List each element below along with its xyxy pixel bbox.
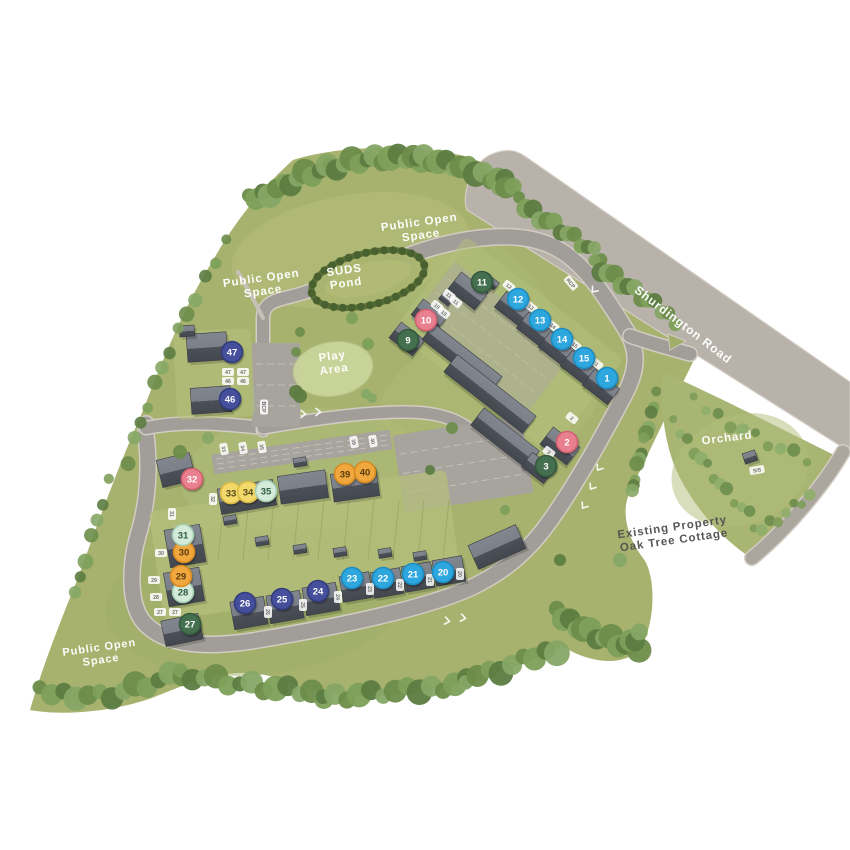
plot-number: 1	[604, 373, 610, 384]
plot-marker-23[interactable]: 23	[342, 568, 363, 589]
site-plan-map: 1111101012131415123474746463130292827273…	[0, 0, 850, 850]
plot-marker-20[interactable]: 20	[433, 562, 454, 583]
plot-number: 22	[378, 573, 389, 584]
plot-number: 29	[176, 571, 187, 582]
parking-plot-label: 28	[150, 593, 162, 601]
plot-marker-47[interactable]: 47	[222, 342, 243, 363]
plot-number: 35	[261, 486, 272, 497]
plot-marker-40[interactable]: 40	[355, 462, 376, 483]
plot-number: 33	[226, 488, 237, 499]
plot-number: 30	[179, 547, 190, 558]
label-suds-pond: SUDSPond	[326, 262, 365, 292]
svg-text:32: 32	[209, 496, 215, 502]
plot-number: 32	[187, 474, 198, 485]
parking-plot-label: 46	[237, 377, 249, 385]
parking-plot-label: 27	[154, 608, 166, 616]
plot-marker-14[interactable]: 14	[552, 329, 573, 350]
parking-plot-label: 31	[168, 508, 176, 520]
plot-number: 25	[277, 594, 288, 605]
plot-number: 23	[347, 573, 358, 584]
plot-marker-22[interactable]: 22	[373, 568, 394, 589]
parking-plot-label: 32	[209, 493, 217, 505]
label-existing-property: Existing PropertyOak Tree Cottage	[617, 514, 730, 554]
svg-text:20: 20	[456, 571, 462, 577]
plot-number: 34	[243, 487, 254, 498]
plot-number: 13	[535, 315, 546, 326]
svg-text:47: 47	[240, 370, 246, 376]
plot-number: 40	[360, 467, 371, 478]
plot-marker-1[interactable]: 1	[597, 368, 618, 389]
plot-marker-46[interactable]: 46	[220, 389, 241, 410]
parking-plot-label: 29	[148, 576, 160, 584]
plot-marker-39[interactable]: 39	[335, 464, 356, 485]
plot-number: 14	[557, 334, 568, 345]
plot-marker-25[interactable]: 25	[272, 589, 293, 610]
plot-number: 10	[421, 315, 432, 326]
svg-text:27: 27	[172, 610, 178, 616]
plot-marker-3[interactable]: 3	[536, 456, 557, 477]
parking-plot-label: 27	[169, 608, 181, 616]
svg-text:27: 27	[157, 610, 163, 616]
parking-plot-label: 26	[264, 606, 272, 618]
parking-plot-label: 47	[222, 368, 234, 376]
parking-plot-label: 47	[237, 368, 249, 376]
plot-marker-26[interactable]: 26	[235, 593, 256, 614]
svg-text:30: 30	[158, 551, 164, 557]
plot-number: 39	[340, 469, 351, 480]
svg-text:BCP: BCP	[260, 402, 266, 413]
plot-number: 15	[579, 353, 590, 364]
plot-number: 21	[408, 569, 419, 580]
plot-number: 9	[405, 335, 410, 346]
svg-text:40: 40	[369, 438, 376, 445]
plot-marker-21[interactable]: 21	[403, 564, 424, 585]
svg-text:25: 25	[299, 602, 305, 608]
svg-text:35: 35	[258, 444, 265, 451]
plot-number: 27	[185, 619, 196, 630]
svg-text:22: 22	[396, 582, 402, 588]
plot-number: 28	[178, 587, 189, 598]
svg-text:23: 23	[366, 586, 372, 592]
plot-number: 31	[178, 530, 189, 541]
plot-marker-10[interactable]: 10	[416, 310, 437, 331]
svg-text:26: 26	[264, 609, 270, 615]
svg-text:46: 46	[225, 379, 231, 385]
plot-marker-24[interactable]: 24	[308, 581, 329, 602]
svg-text:47: 47	[225, 370, 231, 376]
svg-text:29: 29	[151, 578, 157, 584]
plot-marker-29[interactable]: 29	[171, 566, 192, 587]
plot-number: 24	[313, 586, 324, 597]
plot-marker-27[interactable]: 27	[180, 614, 201, 635]
svg-text:31: 31	[168, 511, 174, 517]
label-play-area: PlayArea	[317, 349, 349, 378]
plot-marker-11[interactable]: 11	[472, 272, 493, 293]
plot-marker-31[interactable]: 31	[173, 525, 194, 546]
plot-number: 2	[564, 437, 569, 448]
parking-plot-label: 30	[155, 549, 167, 557]
svg-text:39: 39	[350, 439, 357, 446]
plot-number: 26	[240, 598, 251, 609]
svg-text:21: 21	[426, 577, 432, 583]
plot-number: 3	[543, 461, 548, 472]
plot-number: 46	[225, 394, 236, 405]
parking-plot-label: 46	[222, 377, 234, 385]
plot-marker-15[interactable]: 15	[574, 348, 595, 369]
svg-text:24: 24	[334, 594, 340, 600]
parking-plot-label: 23	[366, 583, 374, 595]
plot-number: 20	[438, 567, 449, 578]
plot-number: 11	[477, 277, 488, 288]
svg-text:46: 46	[240, 379, 246, 385]
plot-number: 47	[227, 347, 238, 358]
plot-marker-35[interactable]: 35	[256, 481, 277, 502]
plot-marker-2[interactable]: 2	[557, 432, 578, 453]
parking-plot-label: BCP	[260, 400, 268, 415]
svg-text:33: 33	[220, 446, 227, 453]
svg-text:34: 34	[239, 445, 246, 452]
plot-marker-12[interactable]: 12	[508, 289, 529, 310]
plot-number: 12	[513, 294, 524, 305]
parking-plot-label: 20	[456, 568, 464, 580]
parking-plot-label: 24	[334, 591, 342, 603]
svg-text:28: 28	[153, 595, 159, 601]
parking-plot-label: 25	[299, 599, 307, 611]
site-plan: 1111101012131415123474746463130292827273…	[0, 0, 850, 850]
plot-marker-32[interactable]: 32	[182, 469, 203, 490]
plot-marker-13[interactable]: 13	[530, 310, 551, 331]
plot-marker-9[interactable]: 9	[398, 330, 419, 351]
parking-plot-label: 22	[396, 579, 404, 591]
